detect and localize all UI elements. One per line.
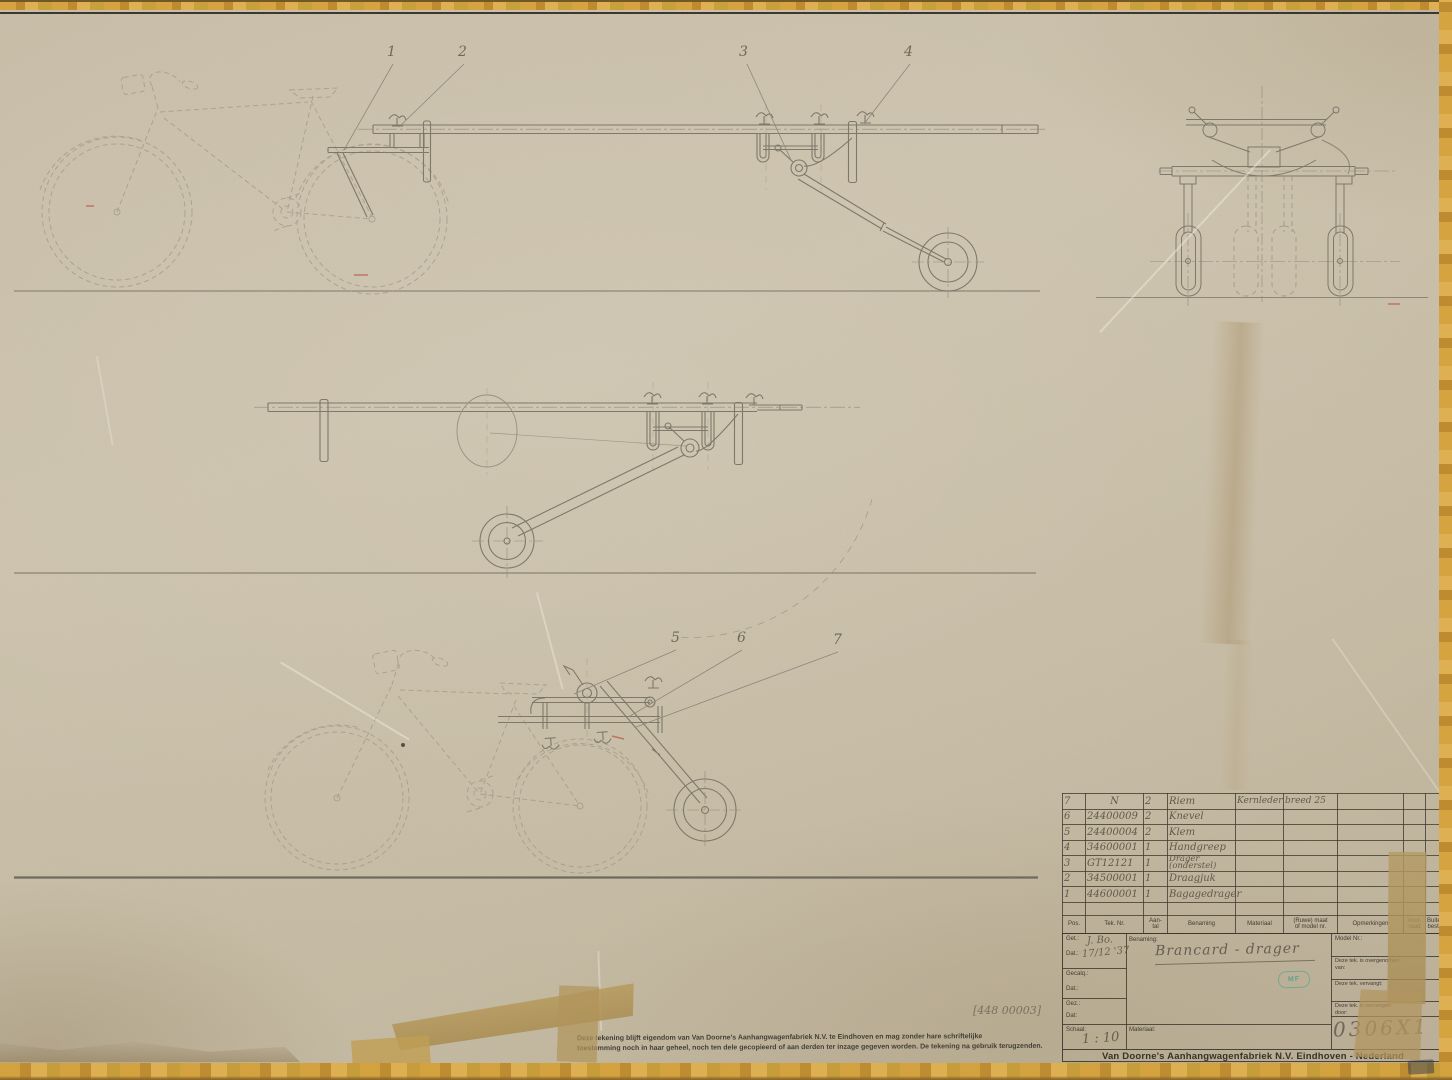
callout-5: 5 [671,630,680,646]
col-header-buiten: Buiten best. [1426,916,1443,934]
cell-teknr: GT12121 [1086,856,1144,872]
drawn-by-label: Get.: [1066,936,1079,943]
table-row: 6 24400009 2 Knevel [1063,809,1443,825]
cell-benaming: Handgreep [1168,840,1236,856]
checked-by-label: Gez.: [1066,1001,1080,1008]
col-header-materiaal: Materiaal [1236,916,1284,934]
cell-aantal: 2 [1144,794,1168,810]
cell-buiten [1426,794,1443,810]
table-row: 3 GT12121 1 Drager (onderstel) [1063,856,1443,872]
cell-materiaal: Kernleder [1236,794,1284,810]
scale-value: 1 : 10 [1082,1030,1120,1048]
date-label: Dat.: [1066,951,1079,958]
date-value: 17/12 '37 [1082,945,1130,960]
table-row: 2 34500001 1 Draagjuk [1063,871,1443,887]
cell-voorraad [1404,794,1426,810]
support-wheel [912,227,984,298]
parts-table: 7 N 2 Riem Kernleder breed 25 6 24400009… [1062,793,1443,934]
cell-benaming: Riem [1168,794,1236,810]
cell-teknr: N [1086,794,1144,810]
cell-teknr: 24400009 [1086,809,1144,825]
cell-aantal: 2 [1144,809,1168,825]
cell-benaming: Draagjuk [1168,871,1236,887]
designation-label: Benaming: [1129,937,1158,944]
col-header-teknr: Tek. Nr. [1086,916,1144,934]
cell-pos: 2 [1063,871,1086,887]
drawing-sheet: 1 2 3 4 5 6 7 [448 00003] Deze tekening … [0,0,1452,1080]
cell-teknr: 34600001 [1086,840,1144,856]
ground-lines [14,291,1428,878]
date3-label: Dat: [1066,1013,1077,1020]
col-header-pos: Pos. [1063,916,1086,934]
disclaimer-text: Deze tekening blijft eigendom van Van Do… [577,1032,1055,1055]
designation-underline [1155,960,1315,965]
cell-maat: breed 25 [1284,794,1338,810]
cell-benaming: Klem [1168,825,1236,841]
cell-teknr: 44600001 [1086,887,1144,903]
cell-aantal: 1 [1144,856,1168,872]
cell-pos: 4 [1063,840,1086,856]
callout-2: 2 [458,44,467,60]
approval-stamp: MF [1278,970,1311,988]
callout-leader-lines [344,64,910,727]
cell-opmerkingen [1338,794,1404,810]
cell-pos: 3 [1063,856,1086,872]
callout-7: 7 [833,632,842,648]
cell-aantal: 1 [1144,840,1168,856]
cell-teknr: 24400004 [1086,825,1144,841]
model-nr-label: Model Nr.: [1335,936,1399,943]
table-row: 5 24400004 2 Klem [1063,825,1443,841]
cell-benaming: Bagagedrager [1168,887,1236,903]
cell-pos: 6 [1063,809,1086,825]
company-footer: Van Doorne's Aanhangwagenfabriek N.V. Ei… [1063,1049,1443,1063]
front-view [1150,86,1400,306]
bicycle-outline [40,72,449,294]
ink-speck [401,743,405,747]
drawing-number: 0306X1 [1333,1014,1430,1041]
table-row-empty [1063,902,1443,916]
col-header-aantal: Aan- tal [1144,916,1168,934]
taken-over-label: Deze tek. is overgenomen van: [1335,958,1399,971]
pencil-note: [448 00003] [973,1004,1041,1017]
callout-4: 4 [904,44,913,60]
designation-value: Brancard - drager [1155,941,1300,960]
carrier-beam [328,104,1046,262]
table-row: 1 44600001 1 Bagagedrager [1063,887,1443,903]
cell-benaming: Knevel [1168,809,1236,825]
col-header-maat: (Ruwe) maat of model nr. [1284,916,1338,934]
table-row: 7 N 2 Riem Kernleder breed 25 [1063,794,1443,810]
cell-aantal: 2 [1144,825,1168,841]
col-header-voorraad: Voor- raad [1404,916,1426,934]
traced-by-label: Gecalq.: [1066,971,1088,978]
callout-1: 1 [387,44,396,60]
table-header-row: Pos. Tek. Nr. Aan- tal Benaming Materiaa… [1063,916,1443,934]
side-view-folded [265,650,744,873]
col-header-benaming: Benaming [1168,916,1236,934]
cell-aantal: 1 [1144,871,1168,887]
title-block: Get.: J. Bo. Dat.: 17/12 '37 Gecalq.: Da… [1062,933,1442,1062]
table-row: 4 34600001 1 Handgreep [1063,840,1443,856]
cell-benaming: Drager (onderstel) [1168,856,1236,872]
cell-pos: 5 [1063,825,1086,841]
replaced-by-label: Deze tek. is vervangen door: [1335,1003,1399,1016]
side-view-extended [40,72,1046,298]
drawn-by-value: J. Bo. [1087,934,1114,946]
col-header-opmerkingen: Opmerkingen [1338,916,1404,934]
plan-view-carrier [254,382,872,638]
date2-label: Dat.: [1066,986,1079,993]
cell-aantal: 1 [1144,887,1168,903]
callout-3: 3 [739,44,748,60]
material-label: Materiaal: [1129,1027,1155,1034]
cell-pos: 1 [1063,887,1086,903]
replaces-label: Deze tek. vervangt: [1335,981,1399,988]
cell-teknr: 34500001 [1086,871,1144,887]
red-pencil-marks [86,206,1400,739]
callout-6: 6 [737,630,746,646]
cell-pos: 7 [1063,794,1086,810]
